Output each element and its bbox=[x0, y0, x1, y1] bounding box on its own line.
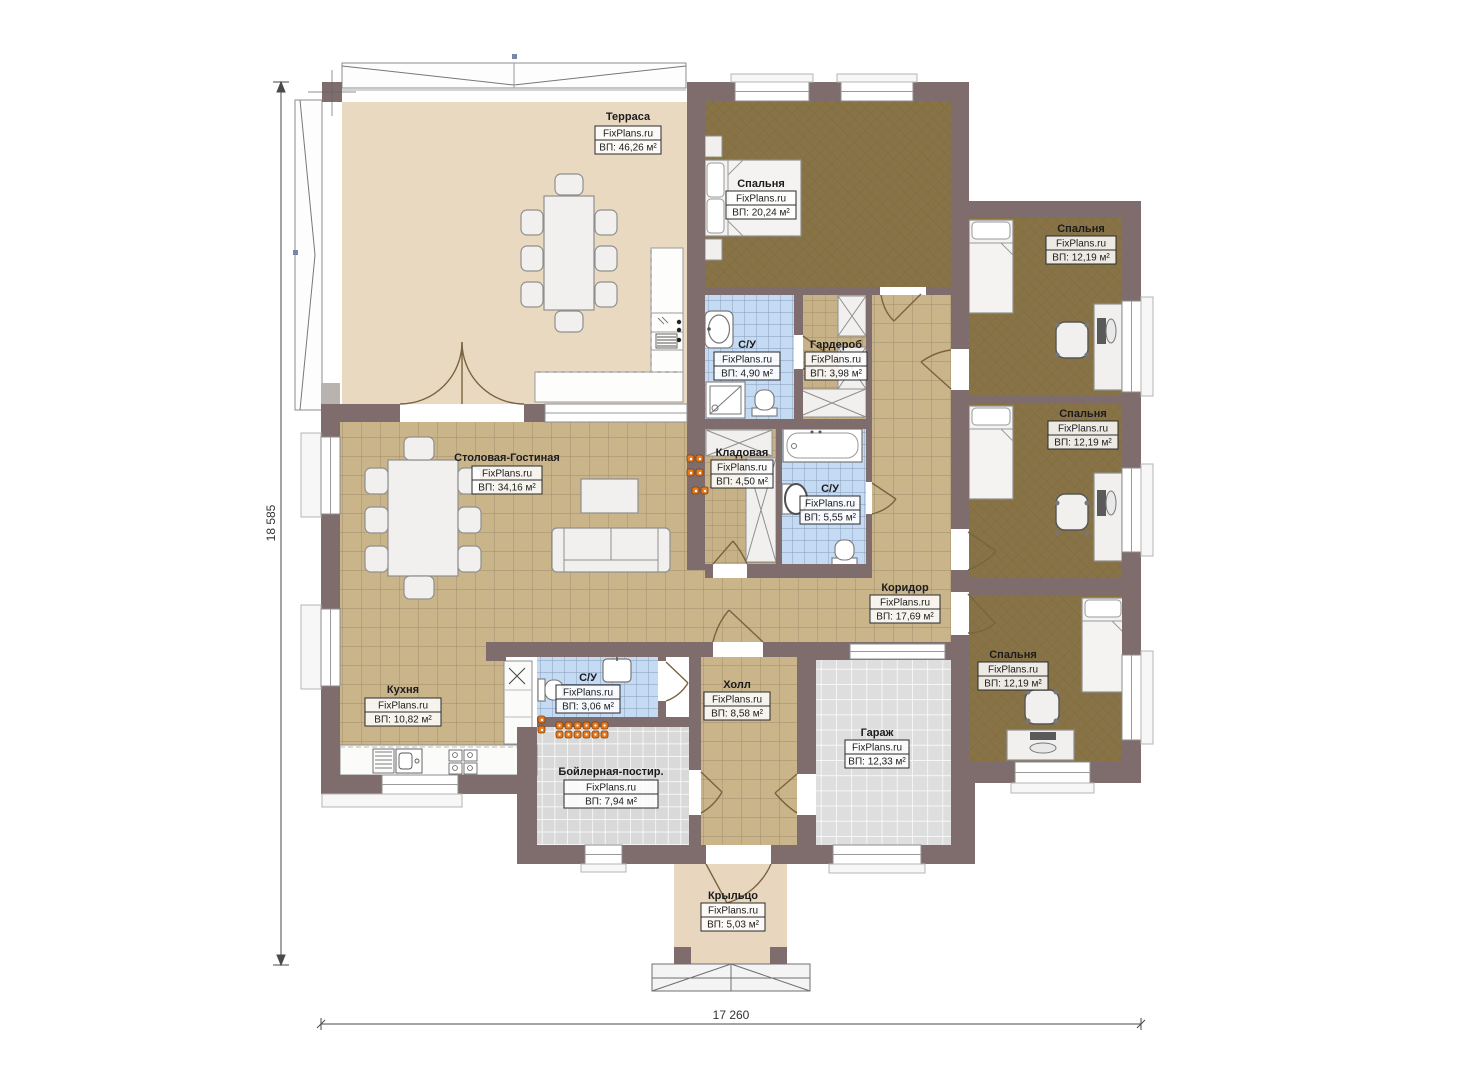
svg-text:ВП: 34,16 м²: ВП: 34,16 м² bbox=[478, 483, 536, 494]
svg-text:ВП: 12,19 м²: ВП: 12,19 м² bbox=[1052, 253, 1110, 264]
svg-text:Гардероб: Гардероб bbox=[810, 339, 862, 351]
svg-text:ВП: 7,94 м²: ВП: 7,94 м² bbox=[585, 797, 638, 808]
svg-text:FixPlans.ru: FixPlans.ru bbox=[603, 129, 653, 140]
svg-text:ВП: 20,24 м²: ВП: 20,24 м² bbox=[732, 208, 790, 219]
svg-text:FixPlans.ru: FixPlans.ru bbox=[1058, 424, 1108, 435]
svg-text:ВП: 5,03 м²: ВП: 5,03 м² bbox=[707, 920, 760, 931]
svg-text:ВП: 4,90 м²: ВП: 4,90 м² bbox=[721, 369, 774, 380]
svg-text:17 260: 17 260 bbox=[713, 1008, 750, 1022]
svg-text:ВП: 10,82 м²: ВП: 10,82 м² bbox=[374, 715, 432, 726]
svg-text:Коридор: Коридор bbox=[881, 582, 929, 594]
svg-text:ВП: 12,19 м²: ВП: 12,19 м² bbox=[984, 679, 1042, 690]
svg-text:Гараж: Гараж bbox=[861, 727, 894, 739]
svg-text:С/У: С/У bbox=[821, 483, 839, 495]
svg-text:Крыльцо: Крыльцо bbox=[708, 890, 758, 902]
svg-text:Спальня: Спальня bbox=[737, 178, 785, 190]
svg-text:FixPlans.ru: FixPlans.ru bbox=[1056, 239, 1106, 250]
svg-text:FixPlans.ru: FixPlans.ru bbox=[805, 499, 855, 510]
svg-text:FixPlans.ru: FixPlans.ru bbox=[482, 469, 532, 480]
svg-text:FixPlans.ru: FixPlans.ru bbox=[712, 695, 762, 706]
svg-text:Спальня: Спальня bbox=[1059, 408, 1107, 420]
svg-text:ВП: 46,26 м²: ВП: 46,26 м² bbox=[599, 143, 657, 154]
svg-text:FixPlans.ru: FixPlans.ru bbox=[722, 355, 772, 366]
svg-text:Кухня: Кухня bbox=[387, 684, 419, 696]
svg-text:FixPlans.ru: FixPlans.ru bbox=[736, 194, 786, 205]
svg-text:FixPlans.ru: FixPlans.ru bbox=[586, 783, 636, 794]
svg-text:FixPlans.ru: FixPlans.ru bbox=[563, 688, 613, 699]
svg-text:С/У: С/У bbox=[579, 672, 597, 684]
svg-text:FixPlans.ru: FixPlans.ru bbox=[811, 355, 861, 366]
svg-text:ВП: 4,50 м²: ВП: 4,50 м² bbox=[716, 477, 769, 488]
svg-text:ВП: 12,33 м²: ВП: 12,33 м² bbox=[848, 757, 906, 768]
svg-text:Спальня: Спальня bbox=[989, 649, 1037, 661]
svg-text:FixPlans.ru: FixPlans.ru bbox=[988, 665, 1038, 676]
svg-text:ВП: 8,58 м²: ВП: 8,58 м² bbox=[711, 709, 764, 720]
svg-text:ВП: 3,06 м²: ВП: 3,06 м² bbox=[562, 702, 615, 713]
svg-text:ВП: 12,19 м²: ВП: 12,19 м² bbox=[1054, 438, 1112, 449]
svg-text:ВП: 3,98 м²: ВП: 3,98 м² bbox=[810, 369, 863, 380]
svg-text:Столовая-Гостиная: Столовая-Гостиная bbox=[454, 452, 560, 464]
svg-text:С/У: С/У bbox=[738, 339, 756, 351]
svg-text:FixPlans.ru: FixPlans.ru bbox=[378, 701, 428, 712]
svg-text:FixPlans.ru: FixPlans.ru bbox=[708, 906, 758, 917]
svg-text:Спальня: Спальня bbox=[1057, 223, 1105, 235]
svg-text:Холл: Холл bbox=[723, 679, 751, 691]
svg-text:FixPlans.ru: FixPlans.ru bbox=[717, 463, 767, 474]
svg-text:FixPlans.ru: FixPlans.ru bbox=[880, 598, 930, 609]
svg-text:ВП: 17,69 м²: ВП: 17,69 м² bbox=[876, 612, 934, 623]
svg-text:Бойлерная-постир.: Бойлерная-постир. bbox=[558, 766, 663, 778]
svg-text:Терраса: Терраса bbox=[606, 111, 651, 123]
svg-text:Кладовая: Кладовая bbox=[716, 447, 769, 459]
svg-text:FixPlans.ru: FixPlans.ru bbox=[852, 743, 902, 754]
svg-text:18 585: 18 585 bbox=[264, 504, 278, 541]
svg-text:ВП: 5,55 м²: ВП: 5,55 м² bbox=[804, 513, 857, 524]
